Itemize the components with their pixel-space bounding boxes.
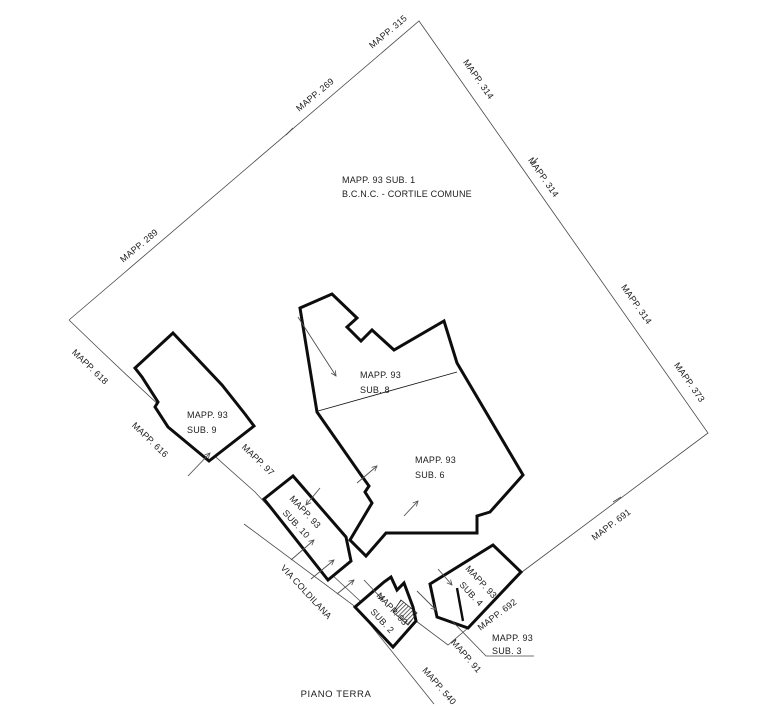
label-mapp-373: MAPP. 373: [672, 361, 707, 405]
plan-title: PIANO TERRA: [301, 689, 372, 700]
label-sub6-line2: SUB. 6: [415, 470, 445, 480]
cadastral-plan-page: MAPP. 315 MAPP. 269 MAPP. 289 MAPP. 314 …: [0, 0, 763, 715]
label-sub9-line1: MAPP. 93: [187, 410, 228, 420]
entrance-arrow-sub9: [188, 453, 210, 476]
label-mapp-616: MAPP. 616: [130, 420, 170, 459]
label-sub8-line2: SUB. 8: [360, 385, 390, 395]
label-mapp-618: MAPP. 618: [70, 347, 110, 386]
label-mapp-691: MAPP. 691: [590, 507, 633, 543]
label-mapp-314-middle: MAPP. 314: [526, 156, 561, 200]
label-sub6-line1: MAPP. 93: [415, 455, 456, 465]
building-sub8-sub6-outline: [300, 294, 523, 556]
label-sub9-line2: SUB. 9: [187, 425, 217, 435]
label-mapp-289: MAPP. 289: [118, 227, 160, 264]
label-mapp-315: MAPP. 315: [367, 13, 409, 50]
label-sub1-line2: B.C.N.C. - CORTILE COMUNE: [342, 189, 472, 199]
label-mapp-269: MAPP. 269: [294, 76, 336, 113]
building-sub4-outline: [430, 545, 521, 628]
label-sub3-line1: MAPP. 93: [492, 633, 533, 643]
label-mapp-97: MAPP. 97: [240, 442, 276, 478]
label-mapp-314-lower: MAPP. 314: [619, 283, 654, 327]
cadastral-map: MAPP. 315 MAPP. 269 MAPP. 289 MAPP. 314 …: [0, 0, 763, 715]
label-sub3-line2: SUB. 3: [492, 646, 522, 656]
label-mapp-314-upper: MAPP. 314: [461, 58, 496, 102]
label-sub1-line1: MAPP. 93 SUB. 1: [342, 175, 415, 185]
boundary-tick-1: [286, 128, 293, 135]
label-mapp-540: MAPP. 540: [420, 665, 458, 706]
label-sub8-line1: MAPP. 93: [360, 370, 401, 380]
label-mapp-91: MAPP. 91: [449, 637, 483, 674]
